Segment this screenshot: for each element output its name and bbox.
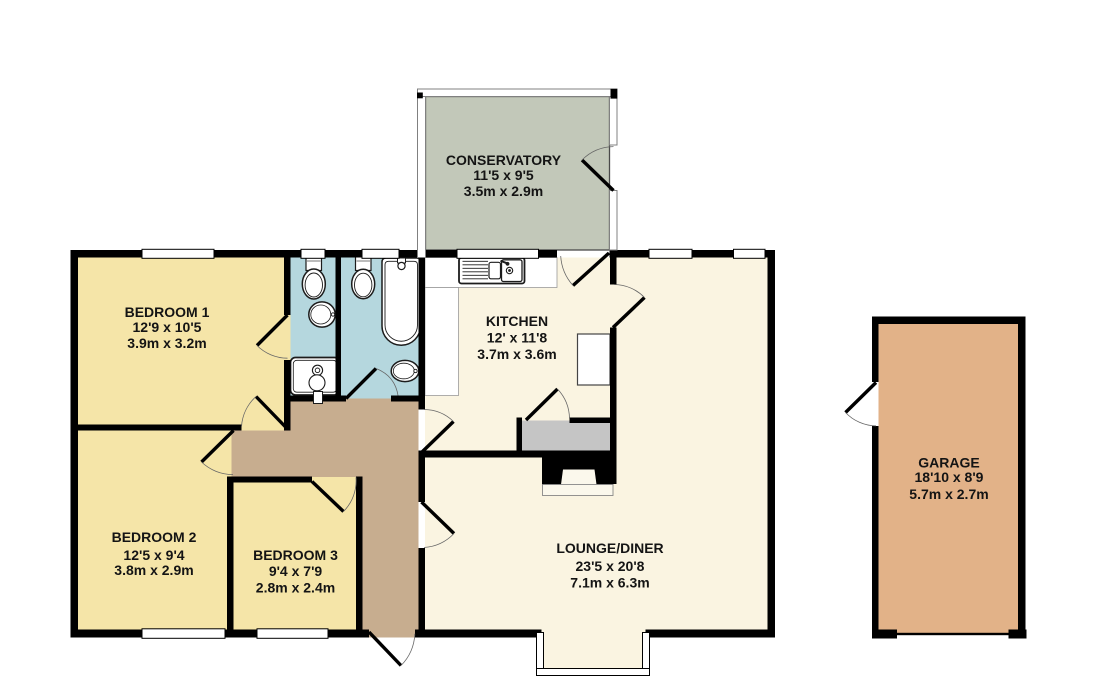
svg-text:BEDROOM 212'5 x 9'43.8m x 2.9m: BEDROOM 212'5 x 9'43.8m x 2.9m	[112, 529, 197, 578]
svg-text:KITCHEN12' x 11'83.7m x 3.6m: KITCHEN12' x 11'83.7m x 3.6m	[477, 313, 556, 362]
svg-text:GARAGE18'10 x 8'95.7m x 2.7m: GARAGE18'10 x 8'95.7m x 2.7m	[909, 455, 988, 503]
svg-text:BEDROOM 112'9 x 10'53.9m x 3.2: BEDROOM 112'9 x 10'53.9m x 3.2m	[125, 304, 210, 351]
